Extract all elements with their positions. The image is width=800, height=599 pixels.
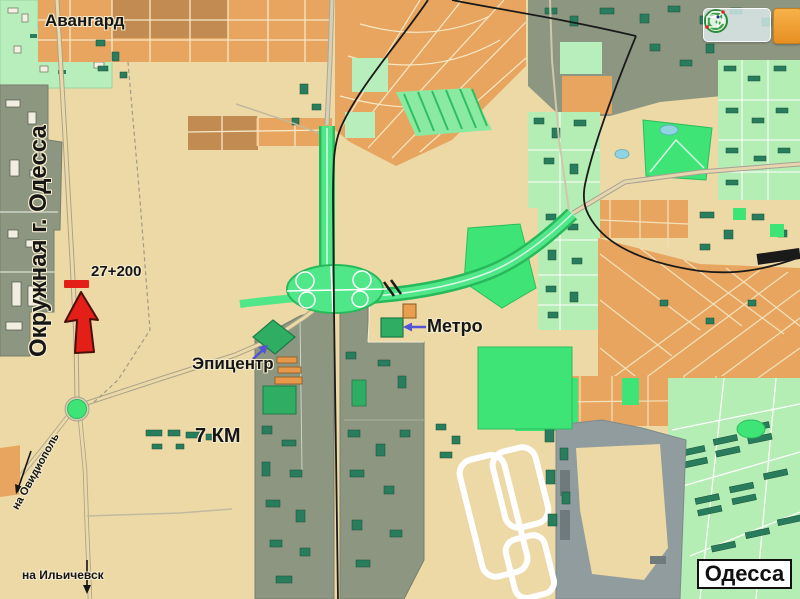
label-to-ilyichevsk: на Ильичевск — [22, 568, 104, 582]
map-screenshot: Авангард Окружная г. Одесса 27+200 Эпице… — [0, 0, 800, 599]
label-km7-market: 7 КМ — [195, 425, 241, 448]
compass-icon[interactable] — [739, 12, 765, 38]
map-toolbar — [703, 8, 800, 44]
red-km-bar — [64, 280, 89, 288]
label-km-post: 27+200 — [91, 263, 141, 280]
label-avangard: Авангард — [45, 11, 125, 31]
metro-building — [381, 318, 403, 337]
cube-3d-icon[interactable] — [773, 8, 800, 44]
city-name-box: Одесса — [697, 559, 792, 589]
park-big-south — [478, 347, 572, 429]
orange-building — [403, 304, 416, 318]
concrete-zone — [556, 420, 686, 599]
label-ring-road: Окружная г. Одесса — [25, 125, 53, 357]
roundabout — [65, 397, 89, 421]
label-metro: Метро — [427, 316, 483, 337]
map-canvas[interactable] — [0, 0, 800, 599]
label-epicentr: Эпицентр — [192, 354, 274, 374]
